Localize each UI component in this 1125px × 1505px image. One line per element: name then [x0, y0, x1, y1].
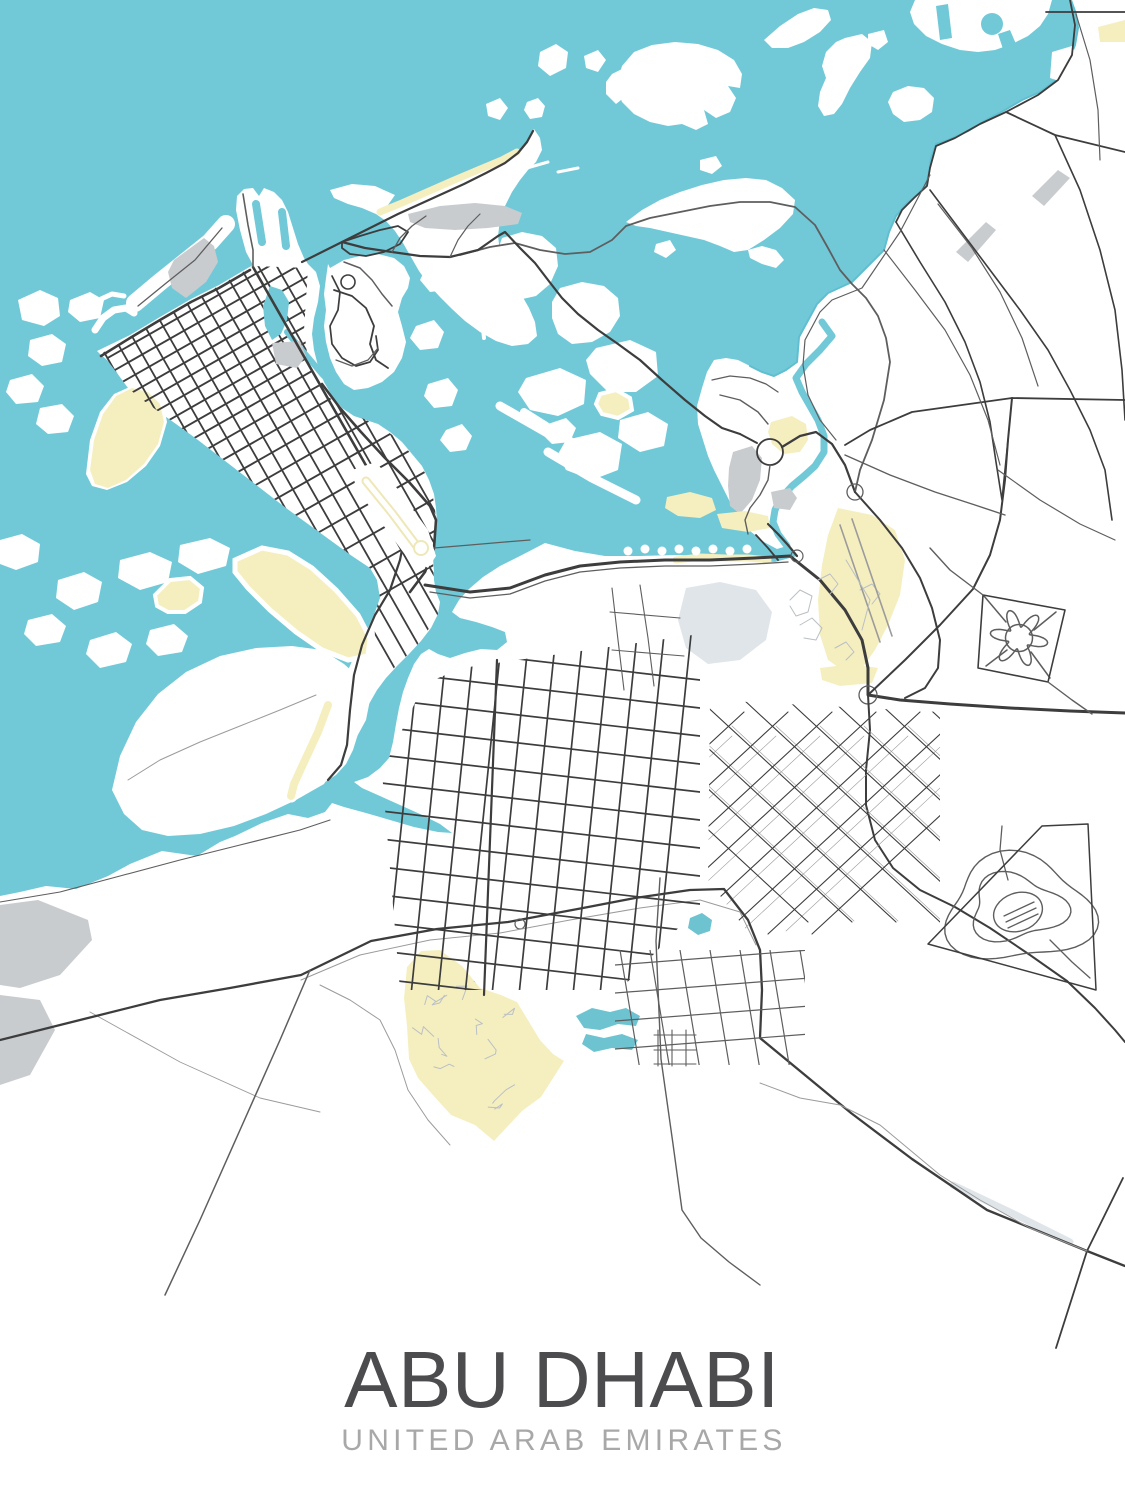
svg-text:ABU DHABI: ABU DHABI: [344, 1335, 780, 1424]
svg-text:UNITED ARAB EMIRATES: UNITED ARAB EMIRATES: [341, 1424, 787, 1457]
